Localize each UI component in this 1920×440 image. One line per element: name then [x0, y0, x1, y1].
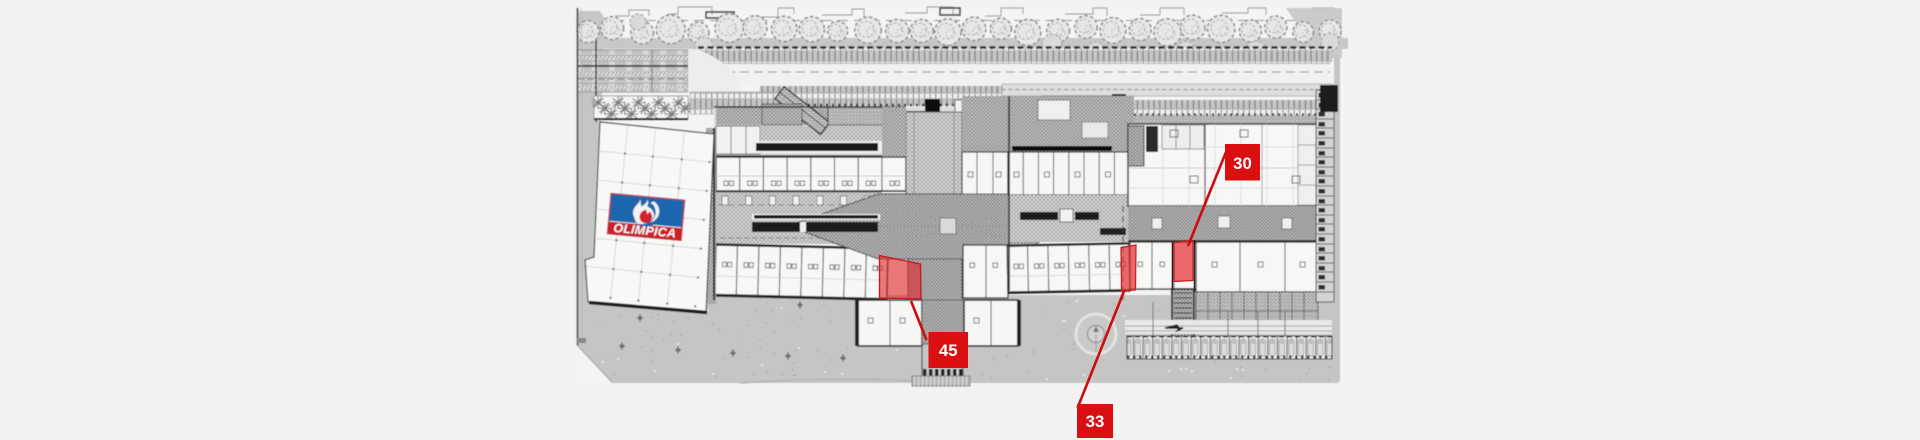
svg-text:30: 30 [1233, 154, 1252, 173]
svg-text:45: 45 [939, 341, 958, 360]
svg-text:33: 33 [1086, 412, 1105, 431]
